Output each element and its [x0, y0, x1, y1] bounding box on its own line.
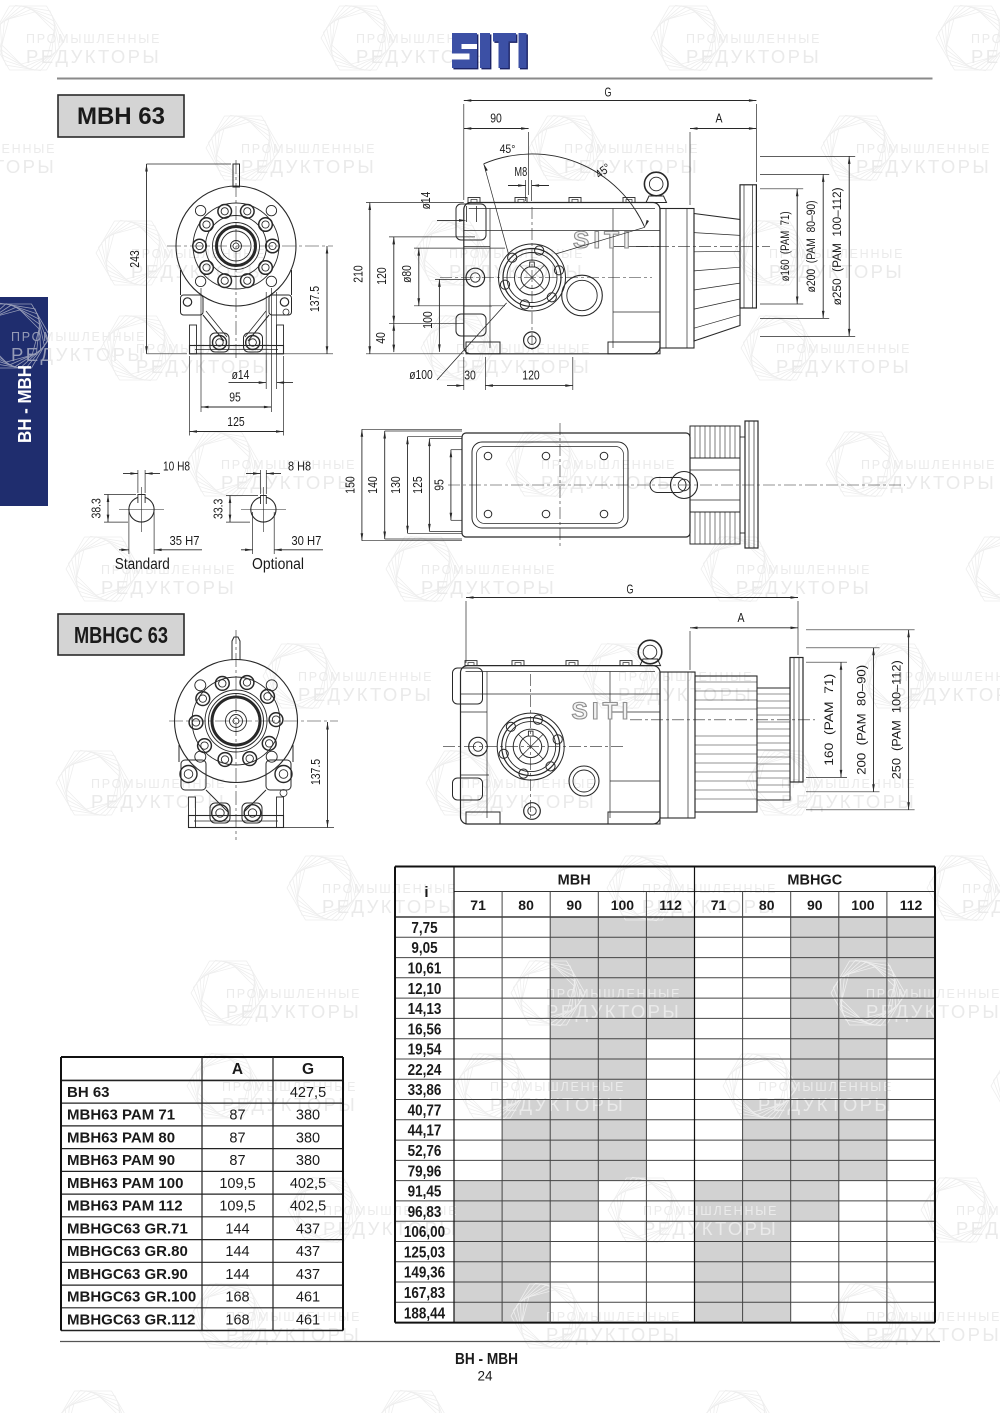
- svg-text:106,00: 106,00: [404, 1224, 445, 1241]
- svg-text:437: 437: [296, 1244, 320, 1260]
- svg-text:100: 100: [851, 897, 875, 913]
- svg-text:16,56: 16,56: [408, 1021, 442, 1038]
- svg-text:BH - MBH: BH - MBH: [455, 1351, 518, 1368]
- svg-text:MBH63 PAM 80: MBH63 PAM 80: [67, 1130, 175, 1147]
- svg-text:188,44: 188,44: [404, 1305, 445, 1322]
- svg-text:BH - MBH: BH - MBH: [15, 365, 35, 443]
- svg-text:G: G: [302, 1061, 314, 1078]
- svg-text:MBHGC63 GR.90: MBHGC63 GR.90: [67, 1266, 188, 1283]
- svg-text:461: 461: [296, 1312, 320, 1328]
- svg-text:MBH63 PAM 100: MBH63 PAM 100: [67, 1175, 183, 1192]
- svg-text:45°: 45°: [500, 142, 516, 156]
- svg-text:95: 95: [229, 391, 241, 405]
- svg-text:150: 150: [343, 476, 357, 493]
- svg-text:19,54: 19,54: [408, 1042, 442, 1059]
- svg-text:160 (PAM 71): 160 (PAM 71): [824, 674, 836, 766]
- svg-text:MBHGC: MBHGC: [787, 873, 842, 889]
- svg-text:40: 40: [374, 332, 388, 344]
- svg-text:33,86: 33,86: [408, 1082, 442, 1099]
- svg-text:71: 71: [711, 897, 727, 913]
- svg-text:MBHGC63 GR.71: MBHGC63 GR.71: [67, 1220, 188, 1237]
- svg-text:MBHGC63 GR.80: MBHGC63 GR.80: [67, 1243, 188, 1260]
- svg-text:250 (PAM 100–112): 250 (PAM 100–112): [892, 660, 904, 779]
- svg-text:90: 90: [490, 112, 502, 126]
- svg-text:33.3: 33.3: [212, 499, 226, 519]
- svg-text:144: 144: [225, 1244, 249, 1260]
- svg-text:G: G: [605, 86, 612, 100]
- svg-text:A: A: [738, 611, 746, 625]
- svg-text:95: 95: [432, 479, 446, 491]
- svg-text:380: 380: [296, 1153, 320, 1169]
- svg-text:112: 112: [659, 897, 682, 913]
- svg-text:ø80: ø80: [400, 265, 414, 283]
- svg-text:24: 24: [477, 1369, 493, 1384]
- svg-text:A: A: [232, 1061, 243, 1078]
- svg-text:79,96: 79,96: [408, 1163, 442, 1180]
- svg-text:168: 168: [225, 1290, 249, 1306]
- svg-text:120: 120: [522, 369, 539, 383]
- svg-text:149,36: 149,36: [404, 1265, 445, 1282]
- svg-text:137.5: 137.5: [308, 286, 322, 312]
- svg-text:168: 168: [225, 1312, 249, 1328]
- svg-text:109,5: 109,5: [219, 1176, 255, 1192]
- svg-text:SITI: SITI: [573, 227, 634, 254]
- svg-text:14,13: 14,13: [408, 1001, 442, 1018]
- svg-text:167,83: 167,83: [404, 1285, 445, 1302]
- svg-text:91,45: 91,45: [408, 1184, 442, 1201]
- svg-text:80: 80: [759, 897, 775, 913]
- svg-text:90: 90: [807, 897, 823, 913]
- svg-text:380: 380: [296, 1108, 320, 1124]
- svg-text:243: 243: [128, 250, 142, 267]
- svg-text:Standard: Standard: [115, 556, 170, 573]
- svg-text:200 (PAM 80–90): 200 (PAM 80–90): [857, 665, 869, 775]
- svg-text:MBH63 PAM 112: MBH63 PAM 112: [67, 1198, 183, 1215]
- svg-text:10 H8: 10 H8: [163, 460, 190, 474]
- svg-text:i: i: [424, 884, 428, 901]
- svg-text:M8: M8: [514, 165, 527, 179]
- svg-text:ø200 (PAM 80–90): ø200 (PAM 80–90): [806, 200, 818, 292]
- svg-text:35 H7: 35 H7: [170, 534, 200, 548]
- svg-text:MBH63 PAM 71: MBH63 PAM 71: [67, 1107, 175, 1124]
- svg-text:MBHGC 63: MBHGC 63: [74, 622, 168, 648]
- svg-text:402,5: 402,5: [290, 1176, 326, 1192]
- svg-text:380: 380: [296, 1131, 320, 1147]
- svg-text:144: 144: [225, 1267, 249, 1283]
- svg-text:87: 87: [229, 1153, 245, 1169]
- svg-text:130: 130: [389, 476, 403, 493]
- svg-text:402,5: 402,5: [290, 1199, 326, 1215]
- svg-text:ø160 (PAM 71): ø160 (PAM 71): [780, 211, 792, 281]
- svg-text:71: 71: [470, 897, 486, 913]
- svg-text:100: 100: [611, 897, 635, 913]
- svg-text:8 H8: 8 H8: [288, 460, 311, 474]
- svg-text:9,05: 9,05: [411, 940, 437, 957]
- svg-text:BH 63: BH 63: [67, 1084, 110, 1101]
- svg-text:30 H7: 30 H7: [291, 534, 321, 548]
- svg-text:7,75: 7,75: [411, 920, 437, 937]
- svg-text:461: 461: [296, 1290, 320, 1306]
- svg-text:12,10: 12,10: [408, 981, 442, 998]
- svg-text:125: 125: [411, 476, 425, 493]
- svg-text:A: A: [716, 112, 724, 126]
- svg-text:MBHGC63 GR.100: MBHGC63 GR.100: [67, 1289, 196, 1306]
- svg-text:100: 100: [421, 311, 435, 328]
- svg-text:38.3: 38.3: [90, 498, 104, 518]
- svg-text:90: 90: [566, 897, 582, 913]
- svg-text:125,03: 125,03: [404, 1244, 445, 1261]
- svg-text:G: G: [627, 583, 634, 597]
- svg-text:MBHGC63 GR.112: MBHGC63 GR.112: [67, 1311, 195, 1328]
- svg-text:87: 87: [229, 1131, 245, 1147]
- svg-text:437: 437: [296, 1267, 320, 1283]
- svg-text:144: 144: [225, 1221, 249, 1237]
- svg-text:109,5: 109,5: [219, 1199, 255, 1215]
- svg-text:ø250 (PAM 100–112): ø250 (PAM 100–112): [832, 187, 844, 305]
- svg-text:ø14: ø14: [232, 368, 250, 382]
- svg-text:44,17: 44,17: [408, 1123, 442, 1140]
- svg-text:210: 210: [352, 265, 366, 282]
- svg-text:437: 437: [296, 1221, 320, 1237]
- svg-text:ø100: ø100: [409, 368, 433, 382]
- svg-text:22,24: 22,24: [408, 1062, 442, 1079]
- svg-text:427,5: 427,5: [290, 1085, 326, 1101]
- svg-text:137.5: 137.5: [309, 759, 323, 785]
- svg-text:SITI: SITI: [572, 698, 633, 725]
- svg-text:30: 30: [464, 369, 476, 383]
- svg-text:52,76: 52,76: [408, 1143, 442, 1160]
- svg-text:125: 125: [227, 415, 244, 429]
- svg-text:87: 87: [229, 1108, 245, 1124]
- svg-text:140: 140: [366, 476, 380, 493]
- svg-text:Optional: Optional: [252, 556, 304, 573]
- svg-text:10,61: 10,61: [408, 961, 442, 978]
- svg-text:МВН 63: МВН 63: [77, 103, 165, 130]
- svg-text:MBH63 PAM 90: MBH63 PAM 90: [67, 1152, 175, 1169]
- svg-text:ø14: ø14: [419, 192, 433, 210]
- svg-text:120: 120: [375, 267, 389, 284]
- svg-text:112: 112: [900, 897, 923, 913]
- svg-text:96,83: 96,83: [408, 1204, 442, 1221]
- svg-text:МВН: МВН: [558, 873, 591, 889]
- svg-text:40,77: 40,77: [408, 1103, 442, 1120]
- svg-text:80: 80: [518, 897, 534, 913]
